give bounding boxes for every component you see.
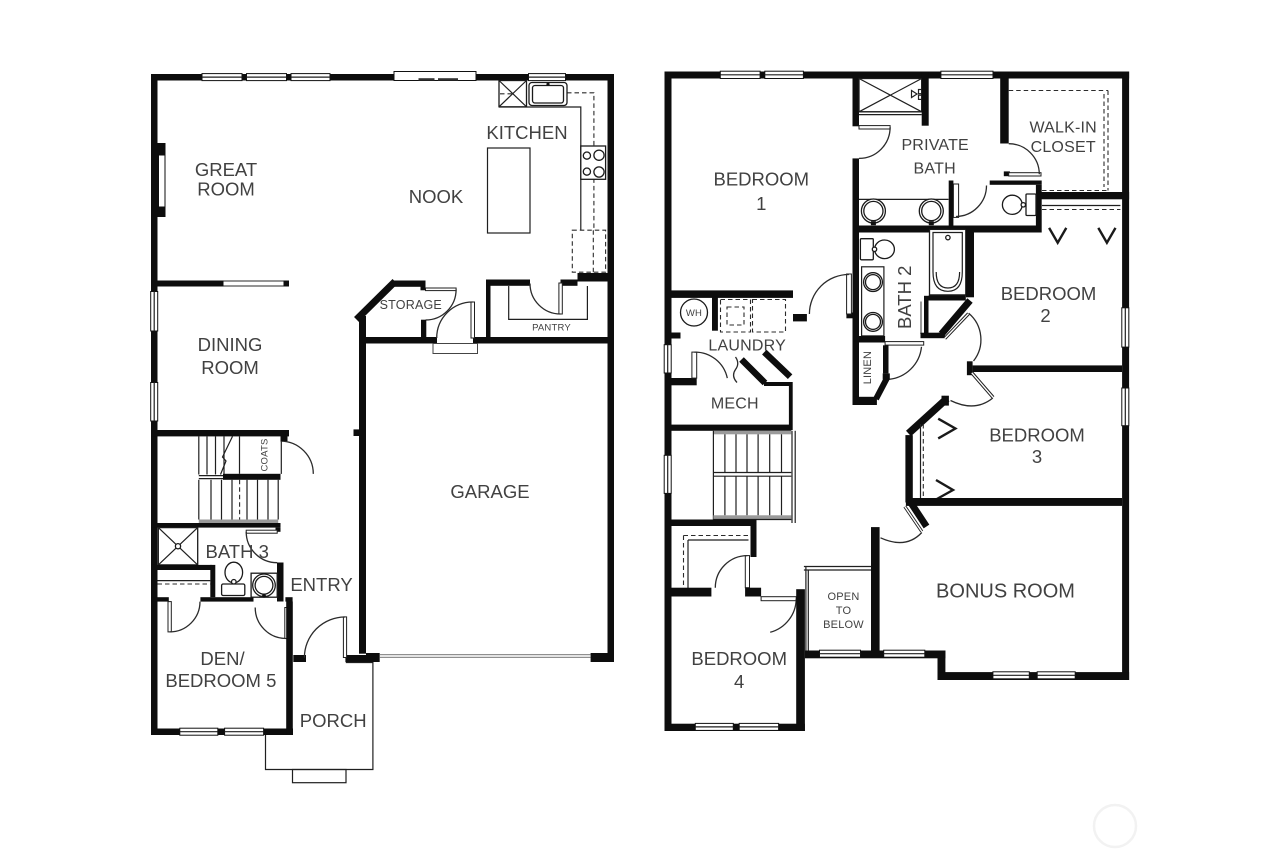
svg-text:KITCHEN: KITCHEN xyxy=(486,122,567,143)
svg-text:PORCH: PORCH xyxy=(300,710,367,731)
svg-text:BEDROOM: BEDROOM xyxy=(989,425,1085,446)
svg-text:ROOM: ROOM xyxy=(201,357,259,378)
svg-text:GARAGE: GARAGE xyxy=(450,481,529,502)
svg-text:BATH: BATH xyxy=(914,161,956,178)
svg-text:BEDROOM: BEDROOM xyxy=(1001,283,1097,304)
svg-text:1: 1 xyxy=(756,193,766,214)
svg-text:LAUNDRY: LAUNDRY xyxy=(708,338,786,355)
svg-text:BEDROOM: BEDROOM xyxy=(714,168,810,189)
svg-text:BONUS ROOM: BONUS ROOM xyxy=(936,581,1075,603)
svg-text:3: 3 xyxy=(1032,446,1042,467)
svg-text:OPEN: OPEN xyxy=(828,591,860,603)
svg-text:PANTRY: PANTRY xyxy=(532,322,571,333)
svg-text:STORAGE: STORAGE xyxy=(380,298,442,312)
svg-text:DINING: DINING xyxy=(198,334,263,355)
svg-text:TO: TO xyxy=(836,605,852,617)
svg-text:BEDROOM: BEDROOM xyxy=(691,648,787,669)
svg-text:LINEN: LINEN xyxy=(862,351,874,384)
svg-text:NOOK: NOOK xyxy=(409,186,464,207)
svg-text:WH: WH xyxy=(686,308,702,319)
svg-text:ENTRY: ENTRY xyxy=(290,574,352,595)
svg-text:GREAT: GREAT xyxy=(195,159,257,180)
svg-text:PRIVATE: PRIVATE xyxy=(901,137,969,154)
svg-text:MECH: MECH xyxy=(711,396,759,413)
svg-text:4: 4 xyxy=(734,671,744,692)
svg-text:BATH 3: BATH 3 xyxy=(205,541,268,562)
svg-text:ROOM: ROOM xyxy=(197,179,255,200)
svg-text:DEN/: DEN/ xyxy=(200,648,245,669)
svg-text:2: 2 xyxy=(1040,305,1050,326)
svg-text:BATH 2: BATH 2 xyxy=(894,266,915,329)
svg-text:BELOW: BELOW xyxy=(823,619,864,631)
svg-text:COATS: COATS xyxy=(260,438,271,471)
svg-text:WALK-IN: WALK-IN xyxy=(1029,120,1096,137)
svg-text:BEDROOM 5: BEDROOM 5 xyxy=(165,670,276,691)
svg-text:CLOSET: CLOSET xyxy=(1031,139,1096,156)
